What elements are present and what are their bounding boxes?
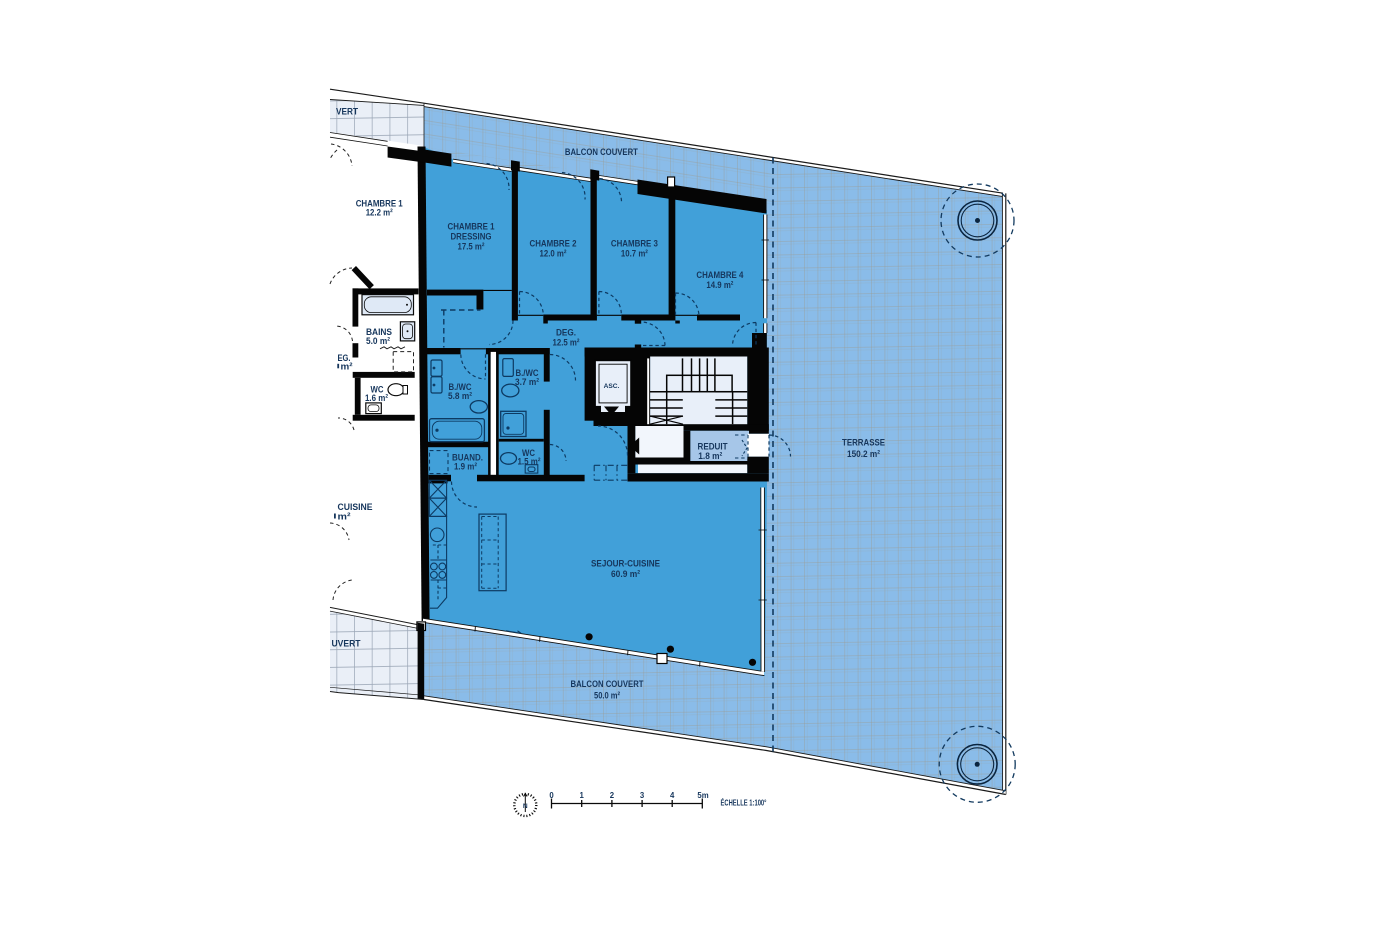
svg-text:1: 1	[580, 791, 585, 800]
svg-text:1.8 m²: 1.8 m²	[698, 450, 722, 461]
svg-text:UVERT: UVERT	[332, 638, 361, 649]
svg-text:ASC.: ASC.	[604, 383, 620, 390]
svg-text:3: 3	[640, 791, 645, 800]
svg-text:12.0 m²: 12.0 m²	[540, 248, 567, 259]
svg-text:1.6 m²: 1.6 m²	[365, 392, 388, 403]
svg-text:1.5 m²: 1.5 m²	[518, 456, 541, 467]
svg-text:0: 0	[549, 791, 554, 800]
svg-text:14.9 m²: 14.9 m²	[706, 279, 733, 290]
svg-text:150.2 m²: 150.2 m²	[847, 448, 880, 459]
svg-text:m²: m²	[338, 511, 351, 522]
svg-text:2: 2	[610, 791, 615, 800]
svg-text:BALCON COUVERT: BALCON COUVERT	[565, 146, 638, 157]
svg-text:50.0 m²: 50.0 m²	[594, 690, 620, 701]
svg-text:VERT: VERT	[336, 106, 358, 117]
svg-text:5m: 5m	[697, 791, 708, 800]
svg-text:5.0 m²: 5.0 m²	[366, 335, 390, 346]
svg-text:3.7 m²: 3.7 m²	[515, 376, 539, 387]
svg-text:12.2 m²: 12.2 m²	[366, 207, 393, 218]
svg-text:SEJOUR-CUISINE: SEJOUR-CUISINE	[591, 558, 660, 569]
svg-text:17.5 m²: 17.5 m²	[458, 241, 485, 252]
svg-text:BALCON COUVERT: BALCON COUVERT	[571, 678, 644, 689]
svg-text:ÉCHELLE 1:100°: ÉCHELLE 1:100°	[721, 799, 767, 808]
svg-text:5.8 m²: 5.8 m²	[448, 390, 472, 401]
svg-text:TERRASSE: TERRASSE	[842, 437, 885, 448]
svg-text:4: 4	[670, 791, 675, 800]
svg-text:N: N	[523, 803, 528, 810]
svg-text:10.7 m²: 10.7 m²	[621, 248, 648, 259]
svg-text:12.5 m²: 12.5 m²	[553, 337, 580, 348]
svg-text:1.9 m²: 1.9 m²	[454, 461, 477, 472]
svg-text:m²: m²	[341, 360, 353, 371]
svg-text:60.9 m²: 60.9 m²	[611, 568, 640, 579]
